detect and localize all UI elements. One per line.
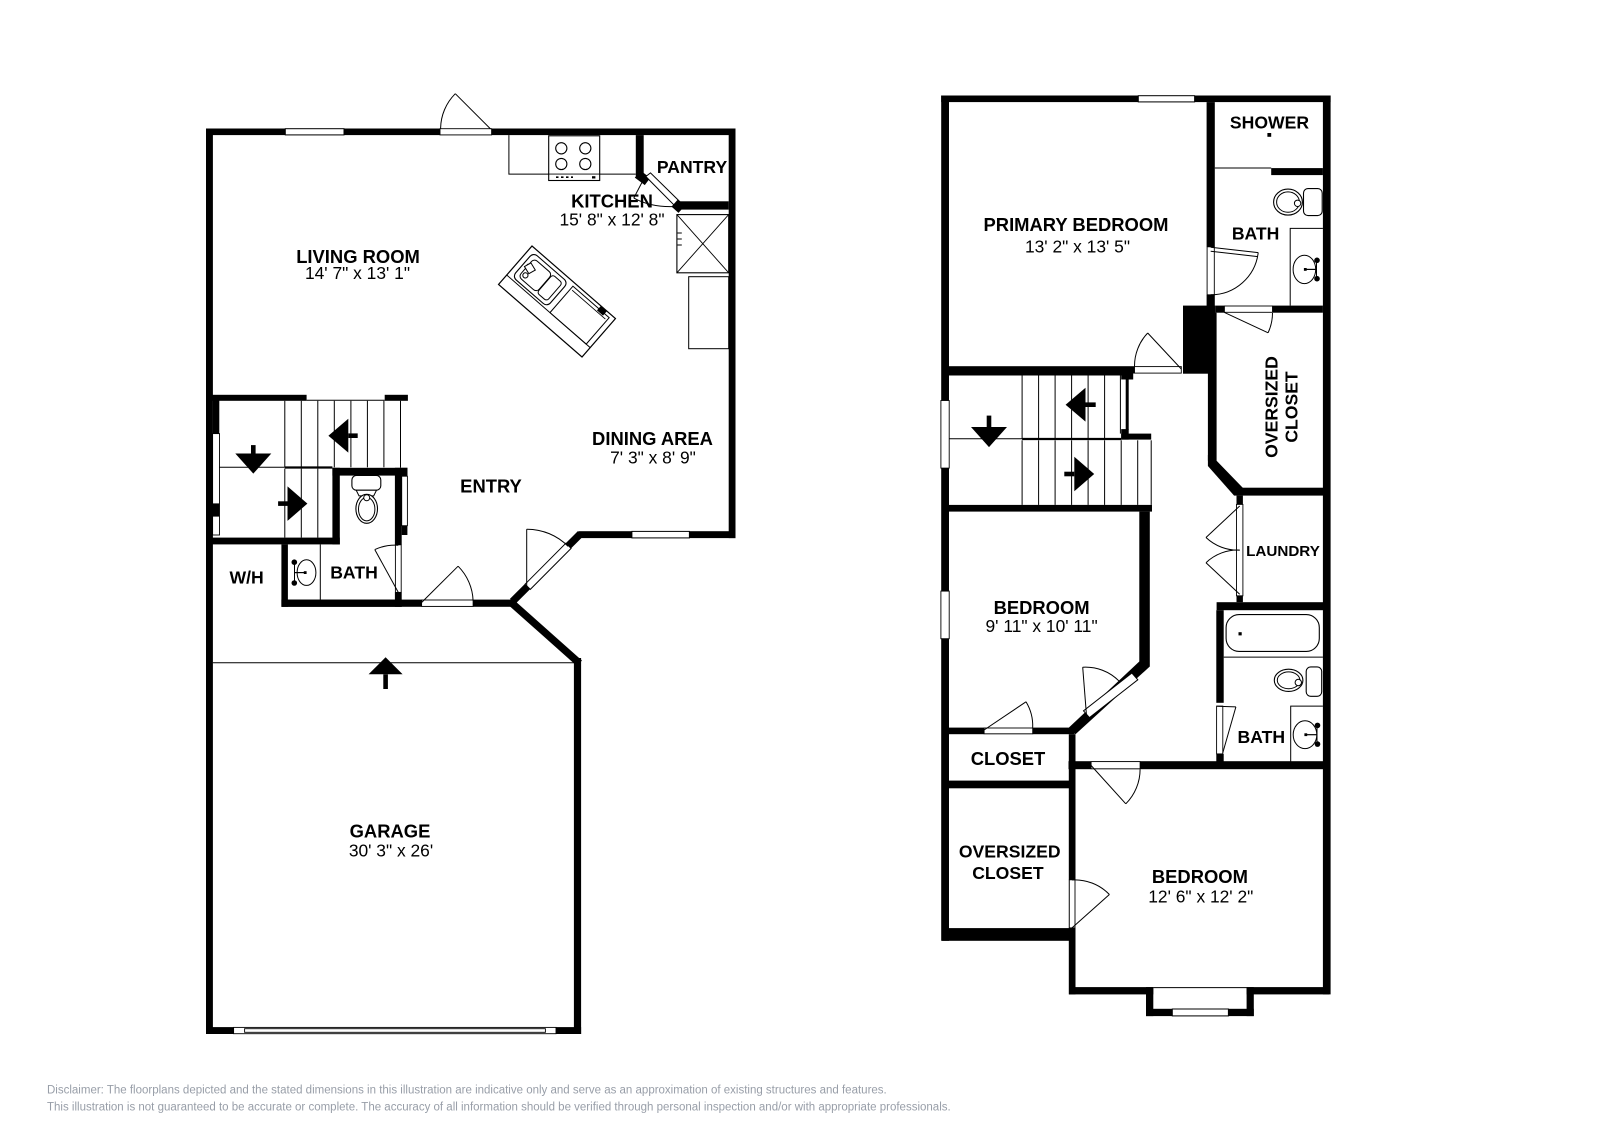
svg-text:Disclaimer: The floorplans dep: Disclaimer: The floorplans depicted and …	[47, 1085, 887, 1097]
svg-text:KITCHEN: KITCHEN	[571, 191, 653, 212]
svg-text:13' 2" x 13' 5": 13' 2" x 13' 5"	[1025, 236, 1130, 256]
svg-text:This illustration is not guara: This illustration is not guaranteed to b…	[47, 1102, 951, 1114]
svg-text:15' 8" x 12' 8": 15' 8" x 12' 8"	[559, 210, 664, 230]
svg-text:30' 3" x 26': 30' 3" x 26'	[349, 840, 433, 860]
svg-text:ENTRY: ENTRY	[460, 476, 522, 497]
svg-text:OVERSIZED: OVERSIZED	[959, 841, 1061, 861]
svg-text:SHOWER: SHOWER	[1230, 113, 1309, 133]
svg-text:BATH: BATH	[1232, 224, 1280, 244]
svg-text:GARAGE: GARAGE	[350, 820, 431, 841]
svg-text:BEDROOM: BEDROOM	[994, 597, 1090, 618]
svg-text:BEDROOM: BEDROOM	[1152, 866, 1248, 887]
svg-text:PANTRY: PANTRY	[657, 157, 728, 177]
svg-text:LAUNDRY: LAUNDRY	[1246, 543, 1320, 560]
svg-text:9' 11" x 10' 11": 9' 11" x 10' 11"	[986, 616, 1098, 636]
svg-text:CLOSET: CLOSET	[972, 863, 1044, 883]
svg-text:7' 3" x 8' 9": 7' 3" x 8' 9"	[610, 448, 696, 468]
svg-text:BATH: BATH	[1238, 727, 1286, 747]
svg-text:12' 6" x 12' 2": 12' 6" x 12' 2"	[1148, 887, 1253, 907]
svg-text:PRIMARY BEDROOM: PRIMARY BEDROOM	[984, 214, 1169, 235]
svg-text:14' 7" x 13' 1": 14' 7" x 13' 1"	[305, 263, 410, 283]
svg-text:OVERSIZED: OVERSIZED	[1262, 356, 1282, 458]
svg-text:BATH: BATH	[330, 562, 378, 582]
svg-text:CLOSET: CLOSET	[1282, 371, 1302, 443]
svg-text:CLOSET: CLOSET	[971, 748, 1046, 769]
svg-text:W/H: W/H	[229, 567, 263, 587]
svg-text:DINING AREA: DINING AREA	[592, 428, 713, 449]
